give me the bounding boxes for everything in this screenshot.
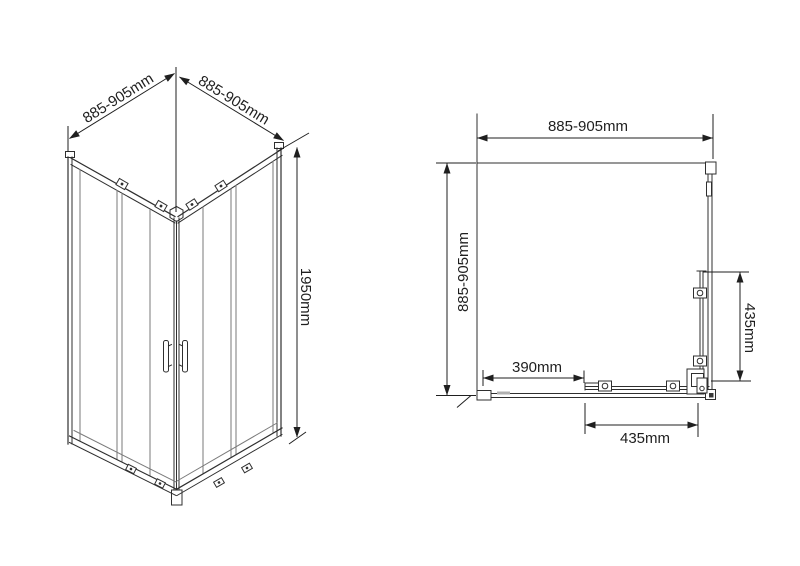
plan-depth-label: 885-905mm [455,232,472,312]
plan-walls [477,114,716,400]
isometric-view: 885-905mm 885-905mm 1950mm [66,67,315,505]
iso-width-right-label: 885-905mm [195,72,272,128]
plan-bottom-panel-label: 435mm [620,430,670,447]
plan-view: 885-905mm 885-905mm 390mm 435mm 435mm [436,114,758,447]
technical-drawing: 885-905mm 885-905mm 1950mm [0,0,800,566]
iso-bottom-rails [70,423,283,496]
plan-offset-label: 390mm [512,359,562,376]
plan-width-label: 885-905mm [548,118,628,135]
plan-corner-block [687,369,707,394]
door-handle-right [180,341,188,373]
iso-height-label: 1950mm [297,268,314,326]
plan-right-panel-label: 435mm [741,303,758,353]
iso-rollers [116,178,252,488]
iso-width-left-label: 885-905mm [80,70,157,127]
drawing-page: 885-905mm 885-905mm 1950mm [0,0,800,566]
door-handle-left [164,341,172,373]
iso-door-handles [164,341,188,373]
